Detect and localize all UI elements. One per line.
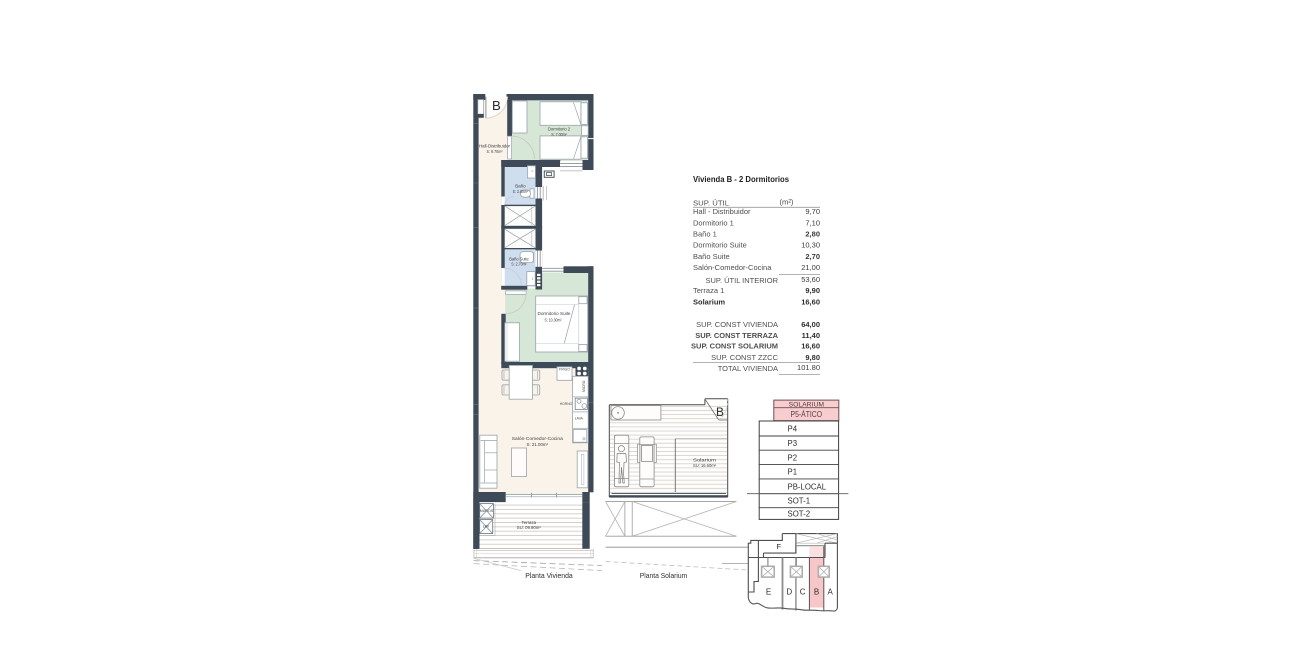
svg-text:(m²): (m²): [780, 198, 794, 207]
svg-text:SUP. ÚTIL INTERIOR: SUP. ÚTIL INTERIOR: [705, 276, 778, 285]
svg-text:P2: P2: [788, 453, 798, 462]
svg-text:2,80: 2,80: [805, 230, 820, 239]
svg-text:Terraza 1: Terraza 1: [693, 286, 724, 295]
svg-text:10,30: 10,30: [801, 241, 820, 250]
svg-text:HORNO: HORNO: [560, 402, 573, 406]
svg-text:9,90: 9,90: [805, 286, 820, 295]
svg-text:FRIGO: FRIGO: [559, 368, 570, 372]
svg-text:9,80: 9,80: [805, 353, 820, 362]
svg-text:P1: P1: [788, 468, 798, 477]
svg-text:Solarium: Solarium: [693, 298, 725, 307]
svg-text:SUP. CONST SOLARIUM: SUP. CONST SOLARIUM: [691, 342, 778, 351]
svg-text:Dormitorio 1: Dormitorio 1: [693, 218, 734, 227]
svg-text:MUROS: MUROS: [480, 509, 494, 513]
svg-text:SUP. CONST ZZCC: SUP. CONST ZZCC: [711, 353, 778, 362]
svg-text:7,10: 7,10: [805, 218, 820, 227]
svg-text:64,00: 64,00: [801, 320, 820, 329]
svg-text:Dormitorio Suite: Dormitorio Suite: [693, 241, 747, 250]
svg-text:11,40: 11,40: [802, 331, 820, 340]
svg-text:SUP. CONST VIVIENDA: SUP. CONST VIVIENDA: [696, 320, 778, 329]
svg-text:SOT-2: SOT-2: [788, 510, 811, 519]
svg-text:SU: 09.90m²: SU: 09.90m²: [517, 525, 542, 530]
svg-text:Hall - Distribuidor: Hall - Distribuidor: [693, 207, 751, 216]
svg-text:SOT-1: SOT-1: [788, 497, 811, 506]
svg-text:SUP. CONST TERRAZA: SUP. CONST TERRAZA: [695, 331, 778, 340]
svg-text:Hall-Distribuidor: Hall-Distribuidor: [479, 144, 511, 149]
svg-text:MICRO: MICRO: [582, 380, 586, 392]
svg-text:Baño Suite: Baño Suite: [693, 252, 730, 261]
svg-text:F: F: [776, 542, 781, 551]
svg-text:A: A: [828, 588, 834, 597]
svg-text:Solarium: Solarium: [693, 457, 716, 462]
svg-text:TOTAL VIVIENDA: TOTAL VIVIENDA: [718, 364, 778, 373]
svg-text:101.80: 101.80: [797, 363, 820, 372]
svg-text:SU: 16.60m²: SU: 16.60m²: [693, 463, 717, 468]
svg-text:Planta Solarium: Planta Solarium: [640, 571, 688, 580]
svg-text:SOLARIUM: SOLARIUM: [789, 401, 824, 408]
svg-text:B: B: [716, 405, 724, 419]
svg-text:21,00: 21,00: [801, 263, 820, 272]
svg-text:Dormitorio Suite: Dormitorio Suite: [538, 311, 572, 316]
svg-text:Planta Vivienda: Planta Vivienda: [525, 571, 573, 580]
svg-text:P4: P4: [788, 425, 798, 434]
svg-text:53,60: 53,60: [801, 275, 820, 284]
svg-text:P5-ÁTICO: P5-ÁTICO: [791, 410, 823, 419]
svg-text:E: E: [766, 588, 771, 597]
svg-text:S: 2.70m²: S: 2.70m²: [511, 262, 527, 267]
svg-text:Salón-Comedor-Cocina: Salón-Comedor-Cocina: [512, 436, 563, 441]
svg-text:9,70: 9,70: [805, 207, 820, 216]
svg-text:2,70: 2,70: [805, 252, 820, 261]
svg-text:LAVA: LAVA: [575, 416, 584, 420]
svg-text:16,60: 16,60: [801, 342, 820, 351]
svg-text:P3: P3: [788, 439, 798, 448]
svg-text:Vivienda B - 2 Dormitorios: Vivienda B - 2 Dormitorios: [693, 174, 789, 184]
svg-text:16,60: 16,60: [801, 298, 820, 307]
svg-text:D: D: [786, 588, 792, 597]
svg-text:B: B: [814, 588, 819, 597]
svg-text:S: 21.00m²: S: 21.00m²: [527, 442, 549, 447]
svg-text:C: C: [800, 588, 806, 597]
svg-text:B: B: [492, 98, 501, 113]
svg-text:PB-LOCAL: PB-LOCAL: [788, 482, 827, 491]
svg-text:S: 2.80m²: S: 2.80m²: [513, 189, 529, 194]
svg-text:LAV: LAV: [483, 525, 490, 529]
svg-text:S: 9.70m²: S: 9.70m²: [487, 149, 504, 154]
svg-text:S: 7.00m²: S: 7.00m²: [551, 132, 567, 137]
svg-text:S: 10.30m²: S: 10.30m²: [545, 317, 563, 322]
svg-text:Salón-Comedor-Cocina: Salón-Comedor-Cocina: [693, 263, 772, 272]
svg-text:Baño 1: Baño 1: [693, 230, 717, 239]
